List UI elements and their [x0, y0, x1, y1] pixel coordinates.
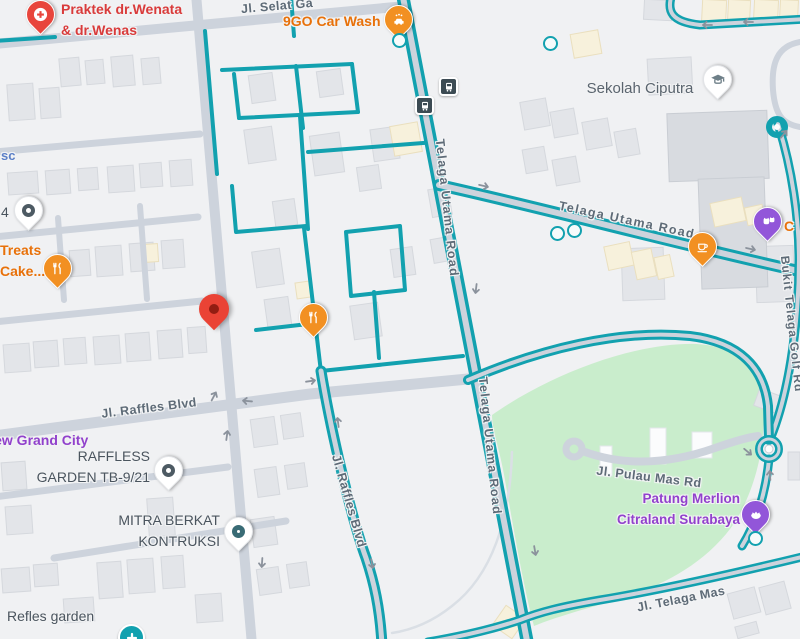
cul-de-sac [566, 441, 582, 457]
map-canvas[interactable]: Jl. Selat Ga Telaga Utama Road Telaga Ut… [0, 0, 800, 639]
poi-label-sekolah[interactable]: Sekolah Ciputra [560, 78, 720, 99]
poi-dot-icon[interactable] [543, 36, 558, 51]
poi-label-raffless[interactable]: RAFFLESS GARDEN TB-9/21 [10, 446, 150, 488]
poi-label-sc[interactable]: sc [1, 145, 15, 166]
poi-dot-icon[interactable] [567, 223, 582, 238]
poi-label-merlion[interactable]: Patung Merlion Citraland Surabaya [580, 488, 740, 530]
poi-label-mitra[interactable]: MITRA BERKAT KONTRUKSI [80, 510, 220, 552]
poi-label-praktek[interactable]: Praktek dr.Wenata & dr.Wenas [61, 0, 182, 41]
poi-label-treats[interactable]: Treats Cake... [0, 240, 45, 282]
poi-label-refles[interactable]: Refles garden [7, 606, 94, 627]
poi-dot-icon[interactable] [392, 33, 407, 48]
poi-label-carwash[interactable]: 9GO Car Wash [283, 11, 381, 32]
poi-label-four[interactable]: 4 [1, 202, 9, 223]
poi-dot-icon[interactable] [550, 226, 565, 241]
bus-stop-icon[interactable] [415, 96, 434, 115]
bus-stop-icon[interactable] [439, 77, 458, 96]
poi-label-c-partial[interactable]: C [784, 216, 794, 237]
poi-dot-icon[interactable] [748, 531, 763, 546]
